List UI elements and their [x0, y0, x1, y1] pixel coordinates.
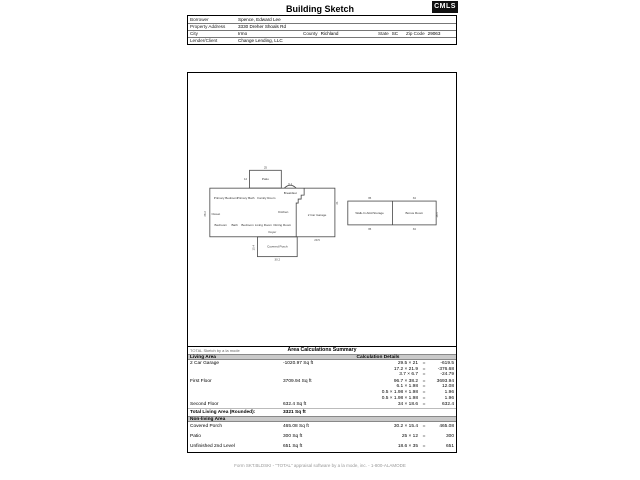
row-name: 2 Car Garage — [188, 361, 283, 366]
lender-value: Change Lending, LLC — [238, 38, 283, 44]
cmls-logo: CMLS — [432, 1, 458, 13]
area-summary-title: Area Calculations Summary — [188, 347, 456, 354]
dimension-label: 29.5 — [314, 238, 320, 242]
state-value: SC — [392, 31, 398, 37]
room-label-bath: Bath — [231, 223, 238, 227]
row-name: Second Floor — [188, 402, 283, 407]
dimension-label: 25 — [264, 165, 268, 169]
city-value: Irmo — [238, 31, 247, 37]
borrower-label: Borrower — [188, 17, 238, 23]
city-row: City Irmo County Richland State SC Zip C… — [188, 30, 456, 37]
room-label-attic-storage: Walk-In Attic/Storage — [355, 211, 384, 215]
row-name: First Floor — [188, 379, 283, 384]
calc-result: 632.4 — [430, 402, 454, 408]
room-label-garage: 2 Car Garage — [308, 213, 327, 217]
county-label: County — [301, 31, 318, 37]
row-area: 632.4 Sq ft — [283, 402, 368, 407]
room-label-kitchen: Kitchen — [278, 210, 289, 214]
room-label-primary-bath: Primary Bath — [237, 196, 255, 200]
room-label-closet: Closet — [211, 212, 220, 216]
calc-expr: 25 × 12 — [368, 434, 418, 440]
state-label: State — [376, 31, 389, 37]
total-living-area-row: Total Living Area (Rounded): 3321 Sq ft — [188, 408, 456, 416]
garage-divider-wall — [296, 188, 304, 237]
calc-result: 300 — [430, 434, 454, 440]
equals-sign: = — [418, 434, 430, 440]
room-label-bonus-room: Bonus Room — [405, 211, 423, 215]
room-label-foyer: Foyer — [268, 230, 276, 234]
row-area: 300 Sq ft — [283, 434, 368, 439]
equals-sign: = — [418, 444, 430, 450]
borrower-value: Spence, Edward Lee — [238, 17, 281, 23]
zip-label: Zip Code — [404, 31, 425, 37]
dimension-label: 35 — [368, 196, 372, 200]
dimension-label: 38.2 — [203, 211, 207, 217]
calc-expr: 18.6 × 35 — [368, 444, 418, 450]
row-name: Covered Porch — [188, 424, 283, 429]
form-footer: Form SKT.BLDSKI - "TOTAL" appraisal soft… — [0, 463, 640, 468]
city-label: City — [188, 31, 238, 37]
page-title: Building Sketch — [0, 4, 640, 14]
room-label-living-room: Living Room — [255, 223, 272, 227]
row-area: 465.08 Sq ft — [283, 424, 368, 429]
equals-sign: = — [418, 402, 430, 408]
zip-value: 29063 — [428, 31, 441, 37]
table-row: First Floor 3709.94 Sq ft 96.7 × 38.2=36… — [188, 378, 456, 401]
room-label-bedroom-2: Bedroom — [241, 223, 254, 227]
equals-sign: = — [418, 424, 430, 430]
building-sketch-canvas: Primary Bedroom Primary Bath Family Room… — [187, 72, 457, 347]
row-area: 3709.94 Sq ft — [283, 379, 368, 384]
row-name: Unfinished 2nd Level — [188, 444, 283, 449]
row-area: -1020.97 Sq ft — [283, 361, 368, 366]
dimension-label: 15.4 — [252, 245, 256, 251]
total-value: 3321 Sq ft — [283, 410, 368, 415]
row-name: Patio — [188, 434, 283, 439]
dimension-label: 12 — [244, 177, 248, 181]
county-value: Richland — [321, 31, 339, 37]
area-calculations-table: TOTAL Sketch by a la mode Area Calculati… — [187, 347, 457, 453]
dimension-label: 6.1 — [288, 182, 292, 186]
table-row: Covered Porch 465.08 Sq ft 30.2 × 15.4=4… — [188, 422, 456, 432]
calc-expr: 30.2 × 15.4 — [368, 424, 418, 430]
property-info-table: Borrower Spence, Edward Lee Property Add… — [187, 15, 457, 45]
calc-result: 465.08 — [430, 424, 454, 430]
calc-expr: 34 × 18.6 — [368, 402, 418, 408]
floor-plan-drawing: Primary Bedroom Primary Bath Family Room… — [188, 73, 456, 346]
room-label-dining-room: Dining Room — [273, 223, 291, 227]
dimension-label: 34 — [413, 227, 417, 231]
room-label-patio: Patio — [262, 177, 269, 181]
row-area: 651 Sq ft — [283, 444, 368, 449]
borrower-row: Borrower Spence, Edward Lee — [188, 16, 456, 23]
room-label-family-room: Family Room — [257, 196, 275, 200]
table-row: 2 Car Garage -1020.97 Sq ft 29.5 × 21=-6… — [188, 360, 456, 378]
table-row: Unfinished 2nd Level 651 Sq ft 18.6 × 35… — [188, 442, 456, 452]
room-label-primary-bedroom: Primary Bedroom — [214, 196, 238, 200]
table-row: Second Floor 632.4 Sq ft 34 × 18.6=632.4 — [188, 401, 456, 408]
table-row: Patio 300 Sq ft 25 × 12=300 — [188, 432, 456, 442]
calc-result: 651 — [430, 444, 454, 450]
dimension-label: 35 — [368, 227, 372, 231]
dimension-label: 21 — [335, 201, 339, 205]
lender-label: Lender/Client — [188, 38, 238, 44]
address-row: Property Address 3330 Dreher Shoals Rd — [188, 23, 456, 30]
lender-row: Lender/Client Change Lending, LLC — [188, 37, 456, 44]
room-label-bedroom-1: Bedroom — [215, 223, 228, 227]
room-label-covered-porch: Covered Porch — [267, 245, 288, 249]
total-label: Total Living Area (Rounded): — [188, 410, 283, 415]
dimension-label: 34 — [413, 196, 417, 200]
dimension-label: 30.2 — [275, 258, 281, 262]
room-label-breakfast: Breakfast — [284, 191, 297, 195]
dimension-label: 18.6 — [435, 212, 439, 218]
